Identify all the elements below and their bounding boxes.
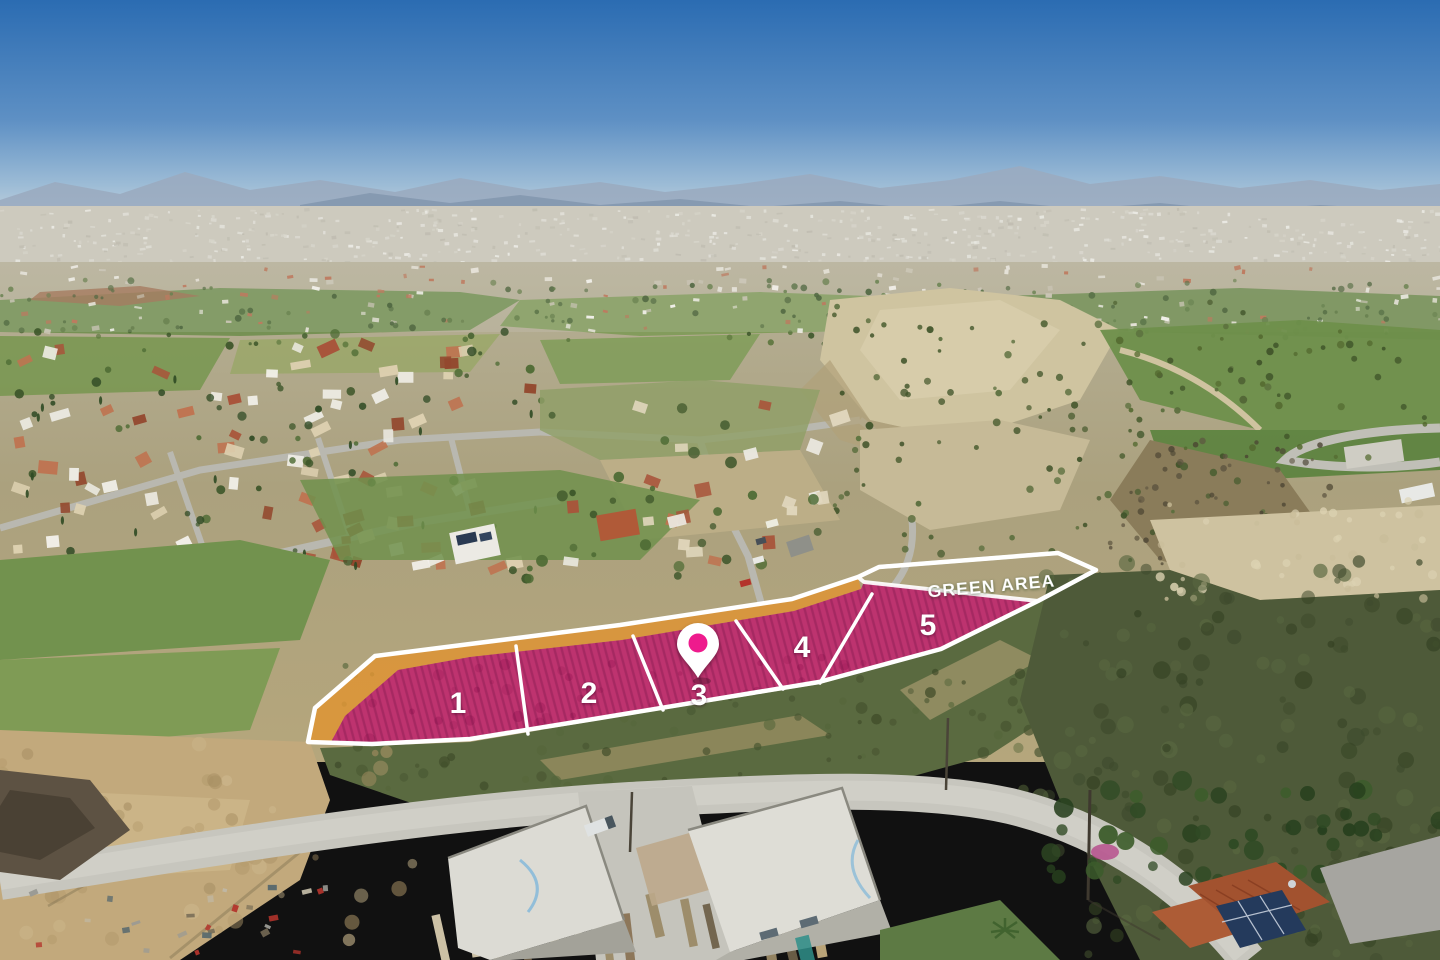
distant-city	[0, 206, 1440, 268]
plot-label-5: 5	[920, 609, 937, 642]
aerial-scene: 1 2 3 4 5 GREEN AREA	[0, 0, 1440, 960]
plot-label-4: 4	[794, 631, 811, 664]
plot-label-1: 1	[450, 687, 467, 720]
plot-label-2: 2	[581, 677, 598, 710]
utility-pole	[1088, 790, 1090, 900]
satellite-dish	[1288, 880, 1296, 888]
aerial-photo: 1 2 3 4 5 GREEN AREA	[0, 0, 1440, 960]
bougainvillea	[1091, 844, 1119, 860]
green-patch	[880, 900, 1060, 960]
